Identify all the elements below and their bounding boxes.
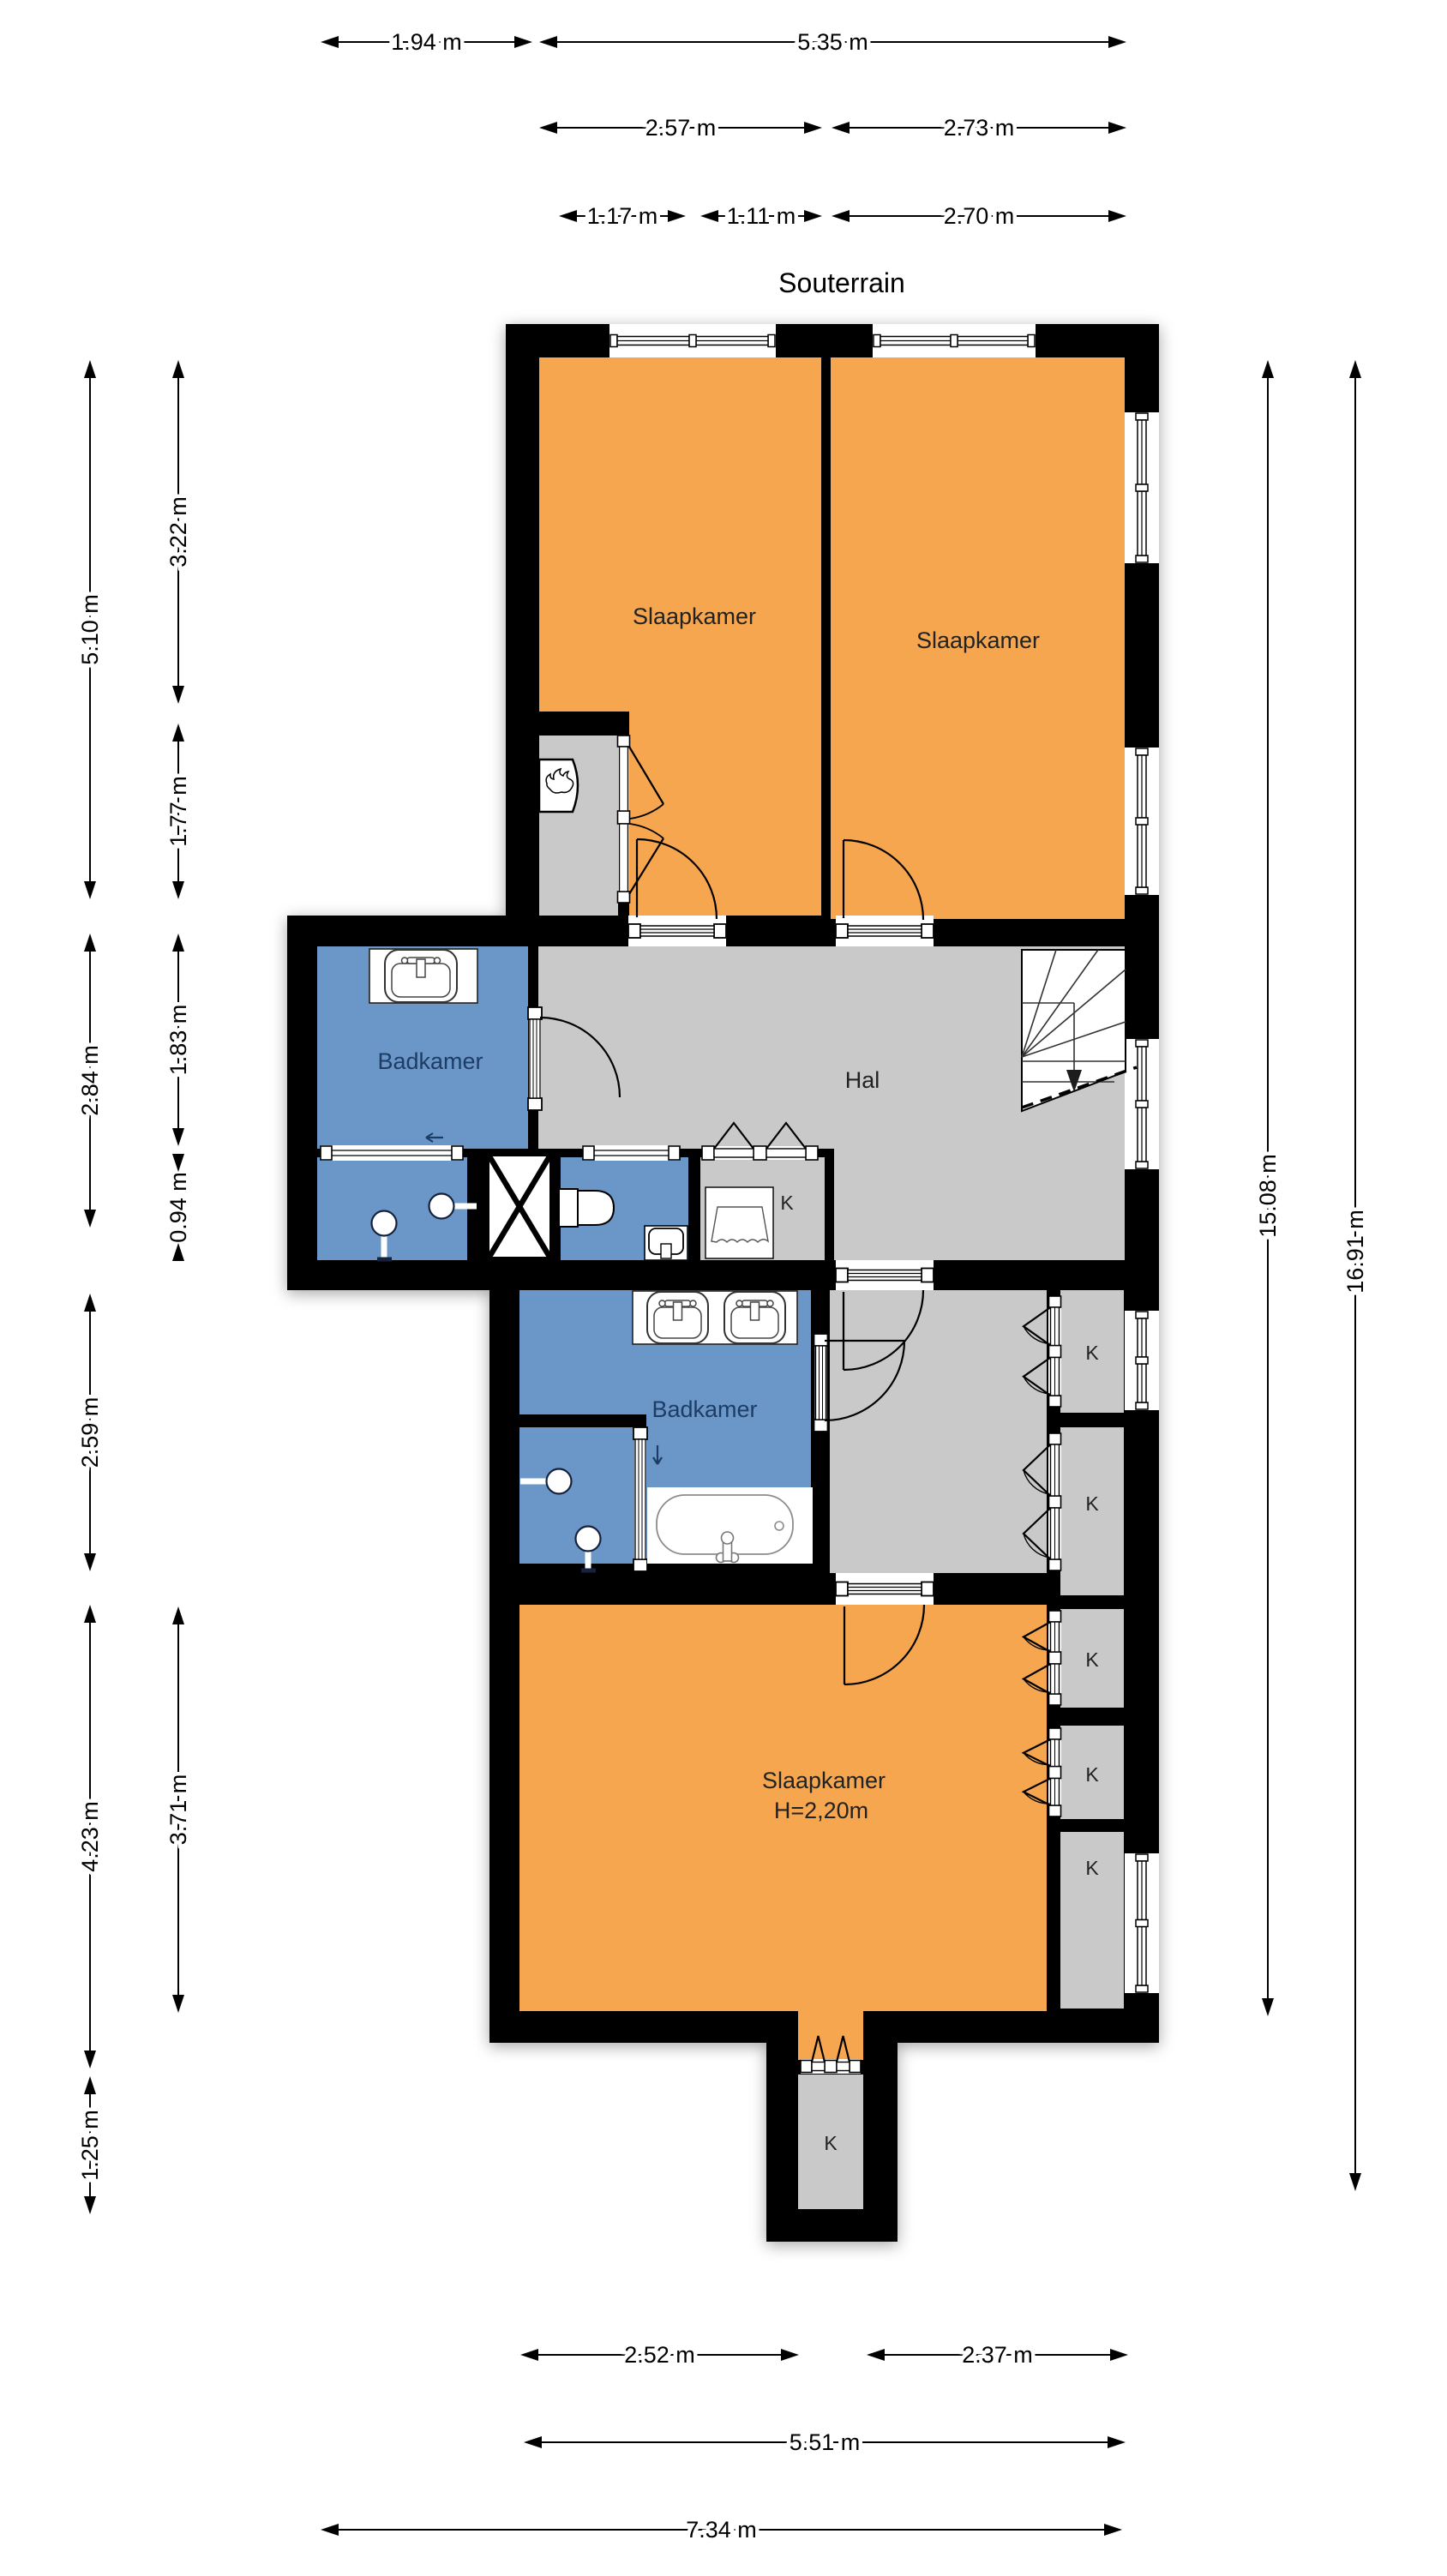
svg-text:Badkamer: Badkamer <box>651 1396 757 1422</box>
svg-text:2.70 m: 2.70 m <box>944 203 1015 229</box>
svg-text:2.52 m: 2.52 m <box>624 2342 695 2368</box>
svg-text:1.83 m: 1.83 m <box>165 1005 191 1076</box>
svg-text:Slaapkamer: Slaapkamer <box>762 1768 886 1793</box>
svg-text:2.59 m: 2.59 m <box>77 1397 103 1468</box>
svg-text:1.77 m: 1.77 m <box>165 776 191 847</box>
svg-text:Hal: Hal <box>845 1067 880 1093</box>
svg-text:Slaapkamer: Slaapkamer <box>633 603 756 629</box>
svg-text:2.73 m: 2.73 m <box>944 115 1015 141</box>
svg-text:3.71 m: 3.71 m <box>165 1774 191 1846</box>
svg-text:1.17 m: 1.17 m <box>587 203 658 229</box>
svg-text:H=2,20m: H=2,20m <box>774 1798 868 1823</box>
svg-text:2.37 m: 2.37 m <box>962 2342 1033 2368</box>
svg-text:1.94 m: 1.94 m <box>391 29 462 55</box>
svg-text:0.94 m: 0.94 m <box>165 1172 191 1243</box>
svg-text:K: K <box>780 1192 794 1214</box>
svg-text:Slaapkamer: Slaapkamer <box>916 627 1040 653</box>
svg-text:K: K <box>1085 1648 1099 1671</box>
svg-text:K: K <box>1085 1342 1099 1364</box>
svg-text:16.91 m: 16.91 m <box>1342 1210 1368 1294</box>
svg-text:7.34 m: 7.34 m <box>686 2517 757 2543</box>
svg-text:5.35 m: 5.35 m <box>797 29 868 55</box>
svg-text:2.84 m: 2.84 m <box>77 1045 103 1116</box>
svg-text:15.08 m: 15.08 m <box>1255 1154 1281 1238</box>
svg-text:K: K <box>1085 1492 1099 1515</box>
svg-text:3.22 m: 3.22 m <box>165 496 191 567</box>
svg-text:Souterrain: Souterrain <box>778 267 905 298</box>
svg-text:5.51 m: 5.51 m <box>790 2429 861 2455</box>
svg-text:2.57 m: 2.57 m <box>645 115 717 141</box>
svg-text:5.10 m: 5.10 m <box>77 594 103 665</box>
svg-text:K: K <box>824 2132 838 2154</box>
svg-text:4.23 m: 4.23 m <box>77 1801 103 1872</box>
svg-text:1.25 m: 1.25 m <box>77 2110 103 2181</box>
svg-text:K: K <box>1085 1857 1099 1879</box>
svg-text:K: K <box>1085 1763 1099 1786</box>
svg-text:Badkamer: Badkamer <box>377 1048 483 1074</box>
svg-text:1.11 m: 1.11 m <box>727 203 796 229</box>
